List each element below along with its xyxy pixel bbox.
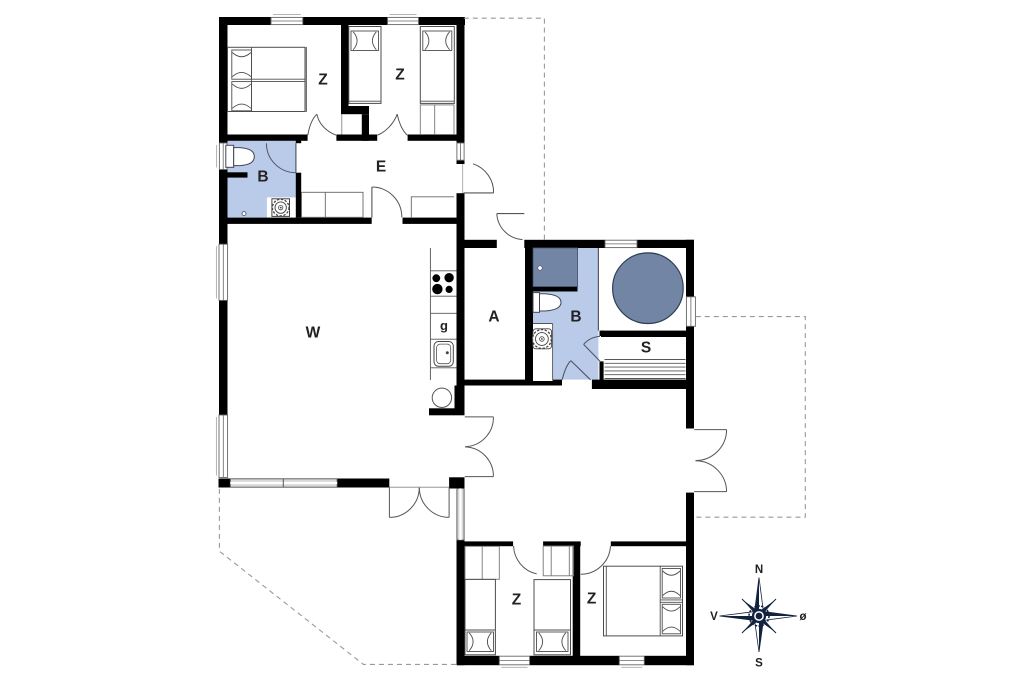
svg-text:Z: Z [318,72,328,89]
svg-text:Z: Z [587,591,597,608]
svg-text:W: W [306,325,321,342]
svg-text:S: S [755,658,763,670]
svg-text:B: B [257,169,268,186]
svg-text:A: A [488,309,499,326]
svg-text:Z: Z [395,67,405,84]
svg-text:g: g [440,318,448,333]
svg-text:V: V [710,611,718,623]
svg-text:E: E [376,159,386,176]
svg-text:B: B [570,309,581,326]
svg-text:S: S [641,340,651,357]
svg-text:ø: ø [799,611,806,623]
svg-text:Z: Z [512,592,522,609]
svg-text:N: N [755,564,763,576]
